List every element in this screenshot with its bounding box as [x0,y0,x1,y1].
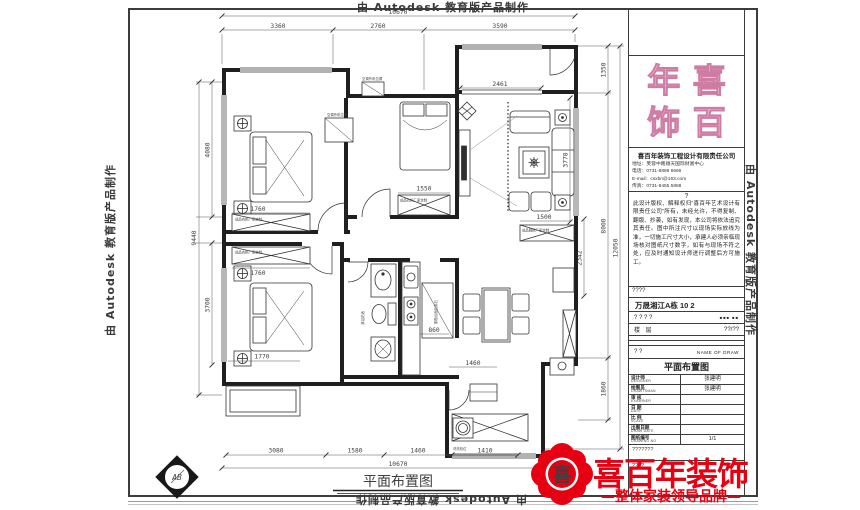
watermark-bottom: 由 Autodesk 教育版产品制作 [355,492,527,508]
row-value: 张建明 [681,375,744,384]
row-label-en: DATE [631,410,678,413]
dim-label: 3360 [270,23,285,30]
company-phone: 电话：0731-8888 6666 [632,168,741,175]
floor-row: 楼 层 ??/?? [629,324,744,336]
company-fax: 传真：0731-8455 5888 [632,183,741,190]
table-row-examiner: 审 核EXAMINER [629,395,744,405]
row-unknown-value: ■■■ ■■ [720,315,739,320]
table-row-scale: 比 例SCALE [629,415,744,425]
dim-label: 1410 [477,448,492,455]
ac-label: 空调外机位置 [362,76,383,81]
dim-label: 3590 [492,23,507,30]
wardrobe-label: 成品衣柜厂家定制 [400,198,428,203]
counter-label: 橱柜台面石英石 [433,300,438,324]
plan-title: 平面布置图 [363,474,433,490]
row-value: 张建明 [681,385,744,394]
dim-label: 10670 [389,461,408,468]
dim-label: 1580 [347,448,362,455]
dim-label: 3778 [563,152,570,167]
dim-label: 2461 [492,81,507,88]
dim-label: 1350 [601,62,608,77]
dim-label: 4080 [205,142,212,157]
dim-label: 1460 [410,448,425,455]
watermark-top: 由 Autodesk 教育版产品制作 [357,0,529,15]
watermark-right: 由 Autodesk 教育版产品制作 [743,164,759,336]
dim-label: 8000 [601,218,608,233]
dim-label: 2760 [370,23,385,30]
shoe-cabinet-label: 成品鞋柜厂家定制 [522,228,550,233]
dim-label: 9440 [191,230,198,245]
row-value [681,405,744,414]
washer-label: 洗衣机位 [453,446,467,451]
table-row-date: 日 期DATE [629,405,744,415]
brand-tagline: —整体家装领导品牌— [591,486,751,506]
brand-seal-icon: 喜 [531,443,593,505]
row-unknown-label: ? ? ? ? [634,315,652,321]
copyright-notes: ? 此设计版权、解释权归“喜百年艺术设计有限责任公司”所有，未经允许，不得复制、… [629,192,744,287]
dim-label: 3080 [268,448,283,455]
row-value [681,395,744,404]
brand-logo: 喜 喜百年装饰 —整体家装领导品牌— [531,443,761,510]
table-row-draw-date: 出图日期DRAW DATE [629,425,744,435]
project-name: 万晟湘江A栋 10 2 [629,298,744,312]
dim-label: 1760 [250,270,265,277]
notes-text: 此设计版权、解释权归“喜百年艺术设计有限责任公司”所有，未经允许，不得复制、翻版… [633,200,740,267]
wardrobe-label: 成品衣柜厂家定制 [235,217,263,222]
drawing-sheet: { "watermark": { "text": "由 Autodesk 教育版… [0,0,860,510]
floor-label: 楼 层 [634,325,654,334]
company-email: E-mail：csxbn@163.com [632,176,741,183]
dim-label: 3700 [205,297,212,312]
dim-label: 1550 [416,186,431,193]
logo-char: 年 [647,64,680,97]
notes-mark: ? [633,193,740,200]
dim-label: 1500 [536,214,551,221]
row-label-en: DRAW DATE [631,430,678,433]
title-block: 年 喜 饰 百 喜百年装饰工程设计有限责任公司 地址：芙蓉中路顺天国际财富中心 … [628,10,745,495]
dim-label: 1860 [601,381,608,396]
dim-label: 1460 [465,360,480,367]
drawing-name-en: NAME OF DRAW [697,350,739,355]
drawing-name: 平面布置图 [629,359,744,375]
floor-value: ??/?? [724,327,739,333]
dim-label: 1760 [250,206,265,213]
row-value [681,415,744,424]
dim-label: 2342 [577,250,584,265]
logo-char: 百 [693,106,726,139]
row-label-en: SCALE [631,420,678,423]
dim-label: 1770 [254,354,269,361]
compass-icon: AB [156,456,198,498]
bay-window [226,386,300,416]
company-seal-logo: 年 喜 饰 百 [629,56,744,148]
bath-label: 淋浴花洒 [360,311,365,325]
row-label-en: DRAWTSMAN [631,390,678,393]
logo-char: 饰 [647,106,680,139]
sheet-title: 平面布置图 [333,474,463,494]
dim-label: 12050 [613,238,620,257]
watermark-left: 由 Autodesk 教育版产品制作 [102,164,118,336]
drawing-name-header: ? ? NAME OF DRAW [629,346,744,359]
table-row-draftsman: 绘图员DRAWTSMAN 张建明 [629,385,744,395]
row-unknown: ? ? ? ? ■■■ ■■ [629,312,744,324]
row-label-en: DESIGNER [631,380,678,383]
row-value [681,425,744,434]
title-block-empty-box [629,10,744,56]
drawing-name-label: ? ? [634,349,642,355]
table-row-designer: 设计师DESIGNER 张建明 [629,375,744,385]
company-address: 地址：芙蓉中路顺天国际财富中心 [632,161,741,168]
company-name: 喜百年装饰工程设计有限责任公司 [632,150,741,160]
company-info: 喜百年装饰工程设计有限责任公司 地址：芙蓉中路顺天国际财富中心 电话：0731-… [629,148,744,192]
wardrobe-label: 成品衣柜厂家定制 [235,250,263,255]
logo-char: 喜 [693,64,726,97]
row-small: ???? [629,287,744,298]
row-label-en: EXAMINER [631,400,678,403]
ac-label: 空调外机位置 [327,112,348,117]
dim-label: 860 [428,327,440,334]
brand-seal-char: 喜 [552,464,571,486]
